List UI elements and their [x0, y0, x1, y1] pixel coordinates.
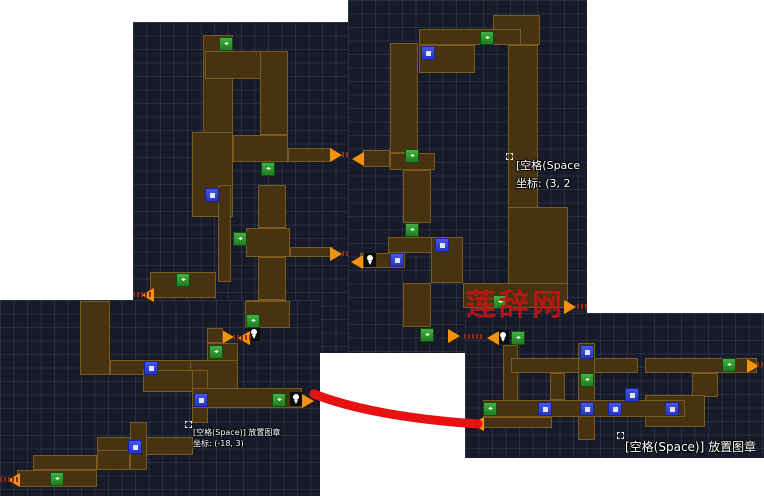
corridor-rect	[363, 150, 390, 167]
corridor-rect	[692, 373, 718, 397]
tiny-label-marks	[577, 304, 587, 309]
door-marker-icon[interactable]: ◂▸	[176, 273, 190, 287]
door-marker-icon[interactable]: ◂▸	[405, 223, 419, 237]
door-marker-icon[interactable]: ◂▸	[511, 331, 525, 345]
door-marker-icon[interactable]: ◂▸	[50, 472, 64, 486]
hint-text-line: [空格(Space	[516, 157, 580, 175]
door-marker-icon[interactable]: ◂▸	[261, 162, 275, 176]
corridor-rect	[403, 283, 431, 327]
tiny-label-marks	[133, 292, 151, 297]
chest-marker-icon[interactable]	[538, 402, 552, 416]
selection-cursor-icon	[185, 421, 192, 428]
chest-marker-icon[interactable]	[205, 188, 219, 202]
hint-text-line: 坐标: (-18, 3)	[193, 438, 280, 449]
corridor-rect	[233, 135, 288, 162]
corridor-rect	[288, 148, 332, 162]
door-marker-icon[interactable]: ◂▸	[246, 314, 260, 328]
map-panel-bottom-right-map[interactable]: ◂▸◂▸◂▸◂▸[空格(Space)] 放置图章	[465, 313, 764, 458]
corridor-rect	[390, 43, 418, 153]
exit-arrow-right-icon[interactable]	[330, 148, 342, 162]
exit-arrow-left-icon[interactable]	[352, 152, 364, 166]
chest-marker-icon[interactable]	[128, 440, 142, 454]
corridor-rect	[419, 29, 521, 45]
tiny-label-marks	[757, 362, 764, 367]
corridor-rect	[97, 450, 130, 470]
corridor-rect	[258, 185, 286, 228]
hint-text-line: [空格(Space)] 放置图章	[625, 440, 756, 454]
exit-arrow-right-icon[interactable]	[330, 247, 342, 261]
corridor-rect	[207, 328, 223, 343]
chest-marker-icon[interactable]	[580, 402, 594, 416]
corridor-rect	[290, 247, 333, 257]
chest-marker-icon[interactable]	[608, 402, 622, 416]
location-pin-icon[interactable]	[290, 392, 302, 406]
door-marker-icon[interactable]: ◂▸	[209, 345, 223, 359]
corridor-rect	[80, 301, 110, 375]
corridor-rect	[260, 51, 288, 135]
map-collage: ◂▸◂▸◂▸◂▸◂▸◂▸◂▸◂▸◂▸◂▸◂▸[空格(Space坐标: (3, 2…	[0, 0, 764, 500]
door-marker-icon[interactable]: ◂▸	[483, 402, 497, 416]
corridor-rect	[258, 257, 286, 300]
hint-text-line: [空格(Space)] 放置图章	[193, 427, 280, 438]
door-marker-icon[interactable]: ◂▸	[722, 358, 736, 372]
chest-marker-icon[interactable]	[580, 345, 594, 359]
corridor-rect	[218, 185, 231, 282]
corridor-rect	[578, 358, 595, 440]
selection-cursor-icon	[617, 432, 624, 439]
corridor-rect	[645, 358, 757, 373]
corridor-rect	[503, 345, 518, 407]
door-marker-icon[interactable]: ◂▸	[420, 328, 434, 342]
chest-marker-icon[interactable]	[625, 388, 639, 402]
hint-text: [空格(Space坐标: (3, 2	[516, 157, 580, 193]
chest-marker-icon[interactable]	[435, 238, 449, 252]
selection-cursor-icon	[506, 153, 513, 160]
corridor-rect	[246, 228, 290, 257]
chest-marker-icon[interactable]	[390, 253, 404, 267]
hint-text: [空格(Space)] 放置图章坐标: (-18, 3)	[193, 427, 280, 449]
watermark-text: 莲辞网	[466, 291, 565, 321]
hint-text-line: 坐标: (3, 2	[516, 175, 580, 193]
door-marker-icon[interactable]: ◂▸	[480, 31, 494, 45]
door-marker-icon[interactable]: ◂▸	[580, 373, 594, 387]
chest-marker-icon[interactable]	[194, 393, 208, 407]
corridor-rect	[511, 358, 638, 373]
exit-arrow-right-icon[interactable]	[564, 300, 576, 314]
exit-arrow-right-icon[interactable]	[448, 329, 460, 343]
hint-text: [空格(Space)] 放置图章	[625, 440, 756, 454]
map-panel-bottom-left-map[interactable]: ◂▸◂▸◂▸◂▸[空格(Space)] 放置图章坐标: (-18, 3)	[0, 300, 320, 496]
corridor-rect	[33, 455, 97, 470]
chest-marker-icon[interactable]	[665, 402, 679, 416]
exit-arrow-left-icon[interactable]	[472, 417, 484, 431]
door-marker-icon[interactable]: ◂▸	[272, 393, 286, 407]
corridor-rect	[483, 417, 552, 428]
chest-marker-icon[interactable]	[421, 46, 435, 60]
exit-arrow-right-icon[interactable]	[302, 394, 314, 408]
chest-marker-icon[interactable]	[144, 361, 158, 375]
location-pin-icon[interactable]	[364, 253, 376, 267]
door-marker-icon[interactable]: ◂▸	[233, 232, 247, 246]
corridor-rect	[550, 373, 565, 400]
corridor-rect	[403, 170, 431, 223]
exit-arrow-left-icon[interactable]	[487, 331, 499, 345]
corridor-rect	[508, 207, 568, 285]
door-marker-icon[interactable]: ◂▸	[219, 37, 233, 51]
door-marker-icon[interactable]: ◂▸	[405, 149, 419, 163]
tiny-label-marks	[0, 477, 18, 482]
exit-arrow-left-icon[interactable]	[351, 255, 363, 269]
